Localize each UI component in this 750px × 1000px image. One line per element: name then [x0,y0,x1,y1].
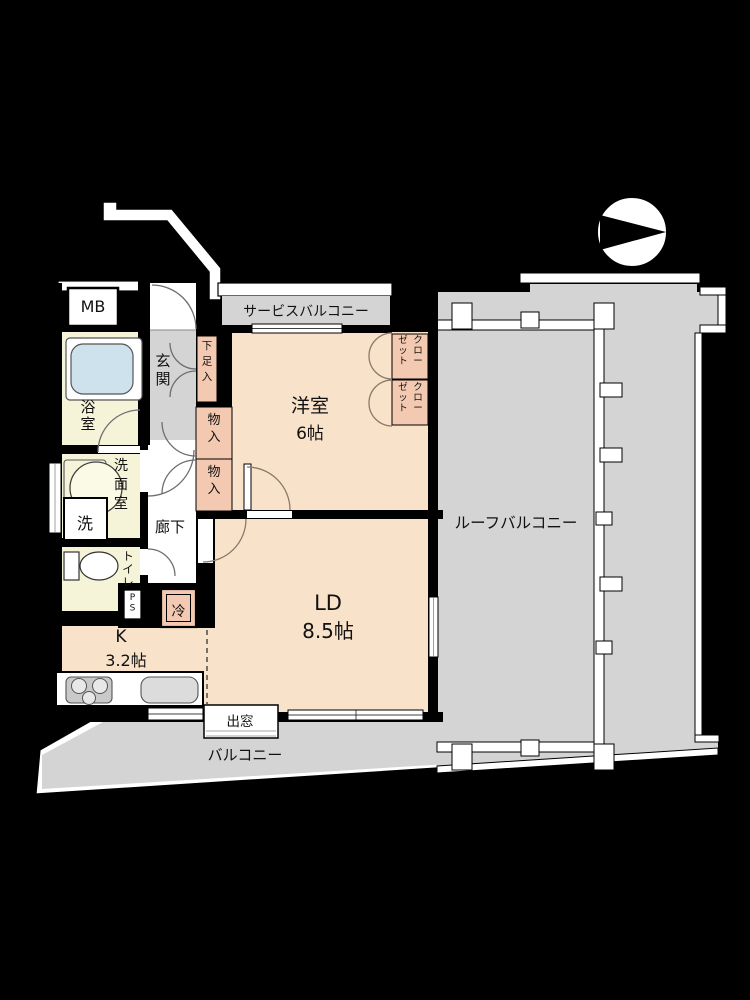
service-balcony-label: サービスバルコニー [243,304,369,320]
washroom-label: 洗面室 [114,458,128,512]
shoe-box-label: 下足入 [202,340,213,383]
roof-balcony-label: ルーフバルコニー [455,514,578,532]
bath-unit [66,338,142,400]
sink-icon [141,677,198,703]
entrance-label: 玄関 [155,352,170,388]
kitchen-size: 3.2帖 [105,651,146,670]
balcony-label: バルコニー [208,746,283,764]
closet2-label-left: ゼット [398,381,408,414]
ld-label: LD [314,591,342,615]
corridor-label: 廊下 [155,518,185,536]
closet1-label-left: ゼット [398,334,408,367]
closet1-label-right: クロー [413,335,423,367]
ld-size: 8.5帖 [302,619,354,643]
closet2-label-right: クロー [413,382,423,414]
washer-label: 洗 [77,514,93,533]
western-room-size: 6帖 [296,424,324,444]
corridor-floor-upper [148,440,196,518]
bathroom-label: 浴室 [80,398,95,433]
kitchen-label: K [115,627,127,647]
living-dining-floor [215,519,428,712]
bay-window-label: 出窓 [227,713,254,730]
mb-label: MB [81,297,106,316]
western-room-door-leaf [244,464,251,510]
compass-north-icon [596,196,668,268]
bathtub [71,344,133,394]
refrigerator-label: 冷 [172,604,186,620]
floor-plan-svg: MB サービスバルコニー 玄関 下足入 洋室 6帖 クロー ゼット クロー ゼッ… [0,0,750,1000]
kitchen-counter [56,672,203,706]
pipe-space-label: PS [130,593,136,614]
western-room-label: 洋室 [291,395,329,417]
toilet-fixture [64,552,118,580]
toilet-label: トイレ [122,549,134,589]
floor-plan-canvas: MB サービスバルコニー 玄関 下足入 洋室 6帖 クロー ゼット クロー ゼッ… [0,0,750,1000]
